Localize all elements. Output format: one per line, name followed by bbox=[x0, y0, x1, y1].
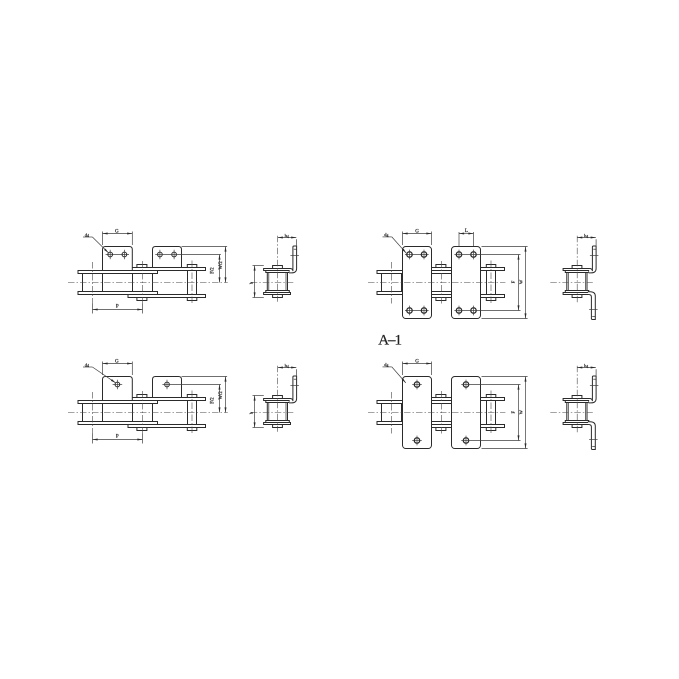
svg-text:h4: h4 bbox=[584, 233, 588, 239]
svg-text:F: F bbox=[511, 280, 516, 283]
svg-text:h4: h4 bbox=[285, 233, 289, 239]
svg-text:h: h bbox=[249, 412, 254, 414]
svg-text:P: P bbox=[116, 304, 119, 309]
svg-text:W: W bbox=[519, 279, 524, 284]
svg-text:F: F bbox=[511, 410, 516, 413]
svg-text:L: L bbox=[465, 229, 468, 234]
svg-text:F/2: F/2 bbox=[211, 267, 216, 274]
svg-text:h4: h4 bbox=[285, 363, 289, 369]
svg-text:W: W bbox=[519, 409, 524, 414]
svg-text:h4: h4 bbox=[584, 363, 588, 369]
svg-text:W/2: W/2 bbox=[219, 391, 224, 400]
svg-text:W/2: W/2 bbox=[219, 261, 224, 270]
svg-text:G: G bbox=[115, 359, 119, 364]
svg-text:G: G bbox=[115, 229, 119, 234]
svg-text:G: G bbox=[415, 229, 419, 234]
svg-text:P: P bbox=[116, 434, 119, 439]
svg-text:h: h bbox=[249, 282, 254, 284]
svg-text:A–1: A–1 bbox=[378, 332, 402, 348]
svg-text:G: G bbox=[415, 359, 419, 364]
svg-text:F/2: F/2 bbox=[211, 397, 216, 404]
